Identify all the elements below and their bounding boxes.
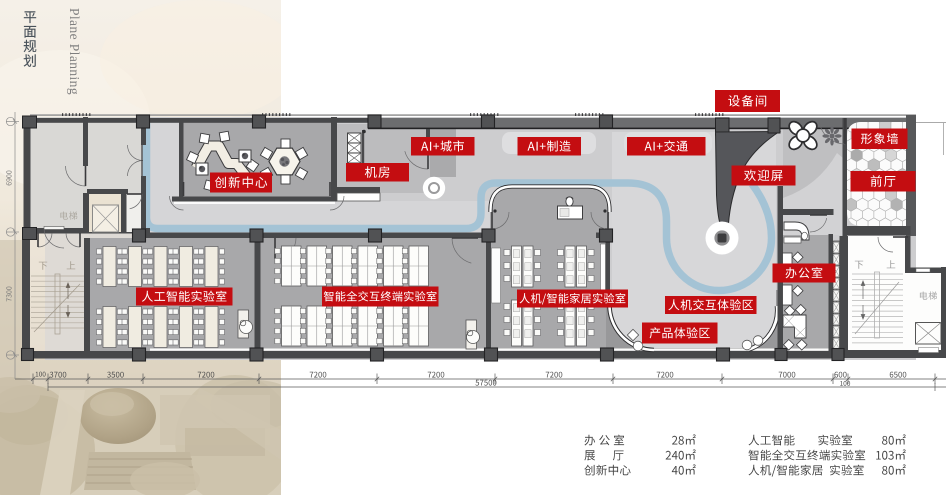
svg-text:Plane Planning: Plane Planning: [67, 8, 82, 95]
